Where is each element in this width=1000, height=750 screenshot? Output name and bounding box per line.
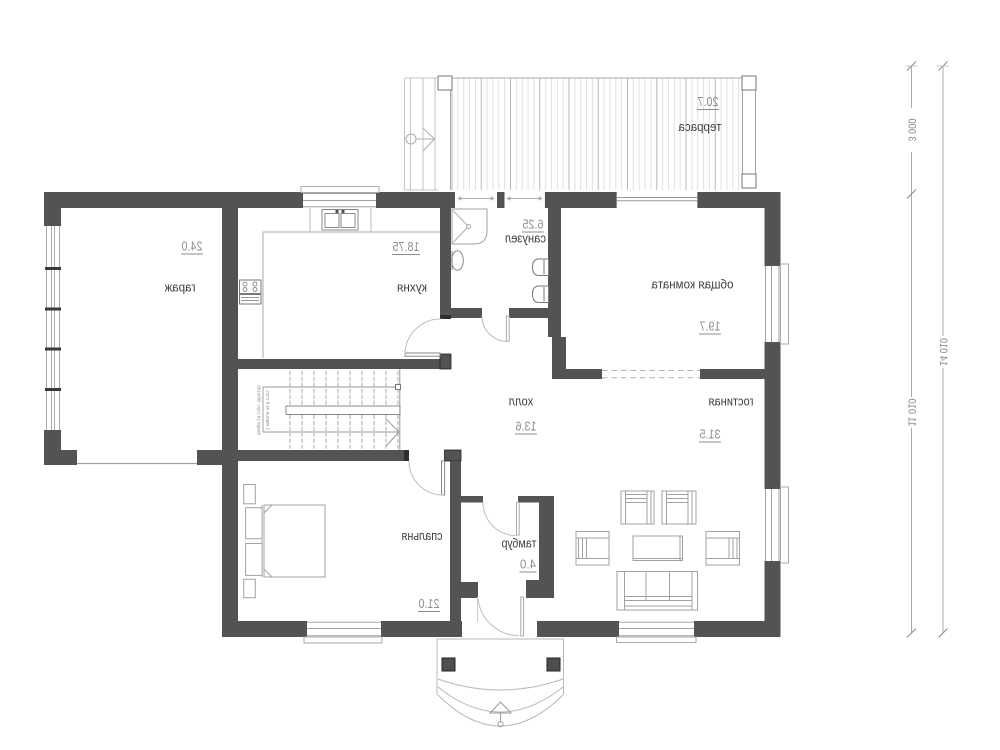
svg-text:6.25: 6.25 bbox=[523, 217, 544, 232]
svg-text:тамбур: тамбур bbox=[502, 536, 537, 551]
svg-text:20.7: 20.7 bbox=[698, 94, 719, 109]
svg-text:спальня: спальня bbox=[402, 528, 443, 543]
svg-text:гараж: гараж bbox=[164, 280, 195, 295]
svg-text:терраса: терраса bbox=[678, 119, 722, 134]
svg-text:21.0: 21.0 bbox=[419, 596, 440, 611]
svg-text:31.5: 31.5 bbox=[700, 427, 721, 442]
svg-text:санузел: санузел bbox=[505, 231, 546, 246]
svg-text:24.0: 24.0 bbox=[182, 239, 203, 254]
svg-text:4.0: 4.0 bbox=[520, 557, 536, 572]
svg-text:Вверх 18 ступ. 300х185: Вверх 18 ступ. 300х185 bbox=[257, 385, 262, 435]
svg-text:19.7: 19.7 bbox=[700, 319, 721, 334]
svg-text:холл: холл bbox=[509, 394, 534, 409]
svg-text:14 010: 14 010 bbox=[937, 338, 949, 366]
svg-text:кухня: кухня bbox=[397, 280, 427, 295]
svg-text:общая комната: общая комната bbox=[651, 277, 734, 292]
svg-text:гостиная: гостиная bbox=[709, 394, 754, 409]
svg-text:18.75: 18.75 bbox=[393, 239, 420, 254]
svg-text:13.6: 13.6 bbox=[516, 419, 537, 434]
svg-text:2 марша по 9 ступ.: 2 марша по 9 ступ. bbox=[266, 390, 271, 430]
svg-text:3 000: 3 000 bbox=[906, 119, 918, 142]
svg-text:11 010: 11 010 bbox=[906, 399, 918, 427]
